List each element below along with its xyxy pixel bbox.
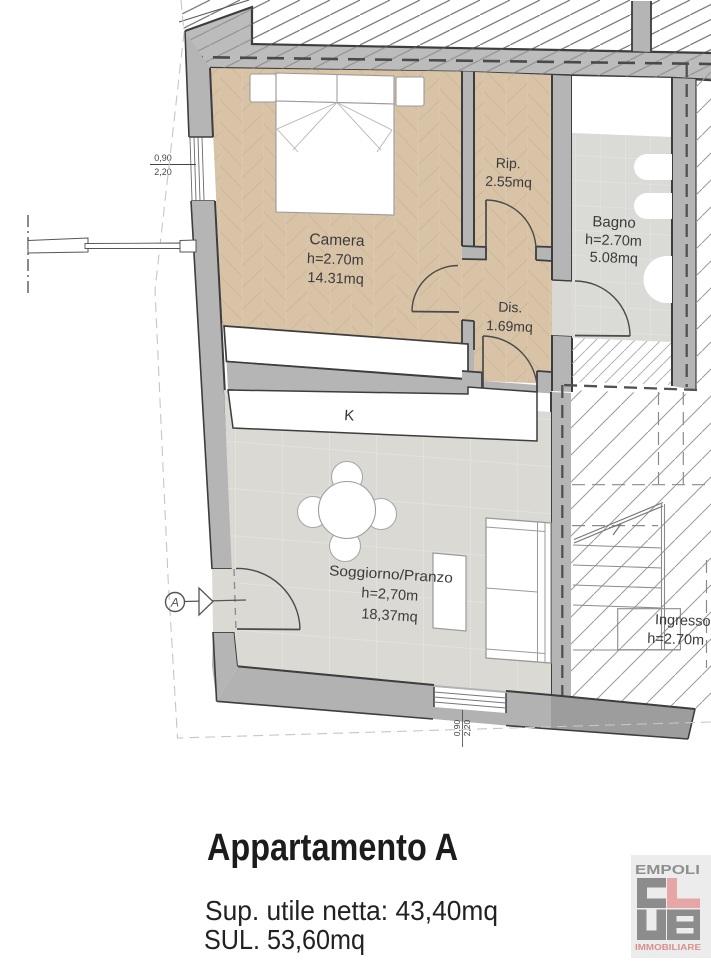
svg-text:h=2.70m: h=2.70m <box>585 232 642 250</box>
svg-text:IMMOBILIARE: IMMOBILIARE <box>635 943 702 952</box>
svg-text:h=2.70m: h=2.70m <box>647 631 704 649</box>
svg-text:0,90: 0,90 <box>452 719 462 736</box>
svg-text:EMPOLI: EMPOLI <box>635 863 700 877</box>
svg-text:Sup. utile netta: 43,40mq: Sup. utile netta: 43,40mq <box>205 895 498 926</box>
svg-text:Ingresso: Ingresso <box>655 612 711 630</box>
svg-text:Appartamento A: Appartamento A <box>207 827 458 869</box>
svg-text:1.69mq: 1.69mq <box>486 317 533 335</box>
svg-text:14.31mq: 14.31mq <box>307 270 364 288</box>
svg-text:2.55mq: 2.55mq <box>485 173 532 191</box>
svg-text:SUL. 53,60mq: SUL. 53,60mq <box>204 924 365 955</box>
svg-text:5.08mq: 5.08mq <box>589 250 638 268</box>
svg-text:Bagno: Bagno <box>592 213 636 232</box>
svg-text:A: A <box>170 596 179 610</box>
svg-text:K: K <box>344 407 355 425</box>
svg-text:2,20: 2,20 <box>462 719 472 736</box>
svg-text:Rip.: Rip. <box>496 155 521 172</box>
svg-text:Dis.: Dis. <box>498 298 523 315</box>
svg-text:h=2.70m: h=2.70m <box>307 251 364 269</box>
svg-text:Camera: Camera <box>309 231 365 250</box>
